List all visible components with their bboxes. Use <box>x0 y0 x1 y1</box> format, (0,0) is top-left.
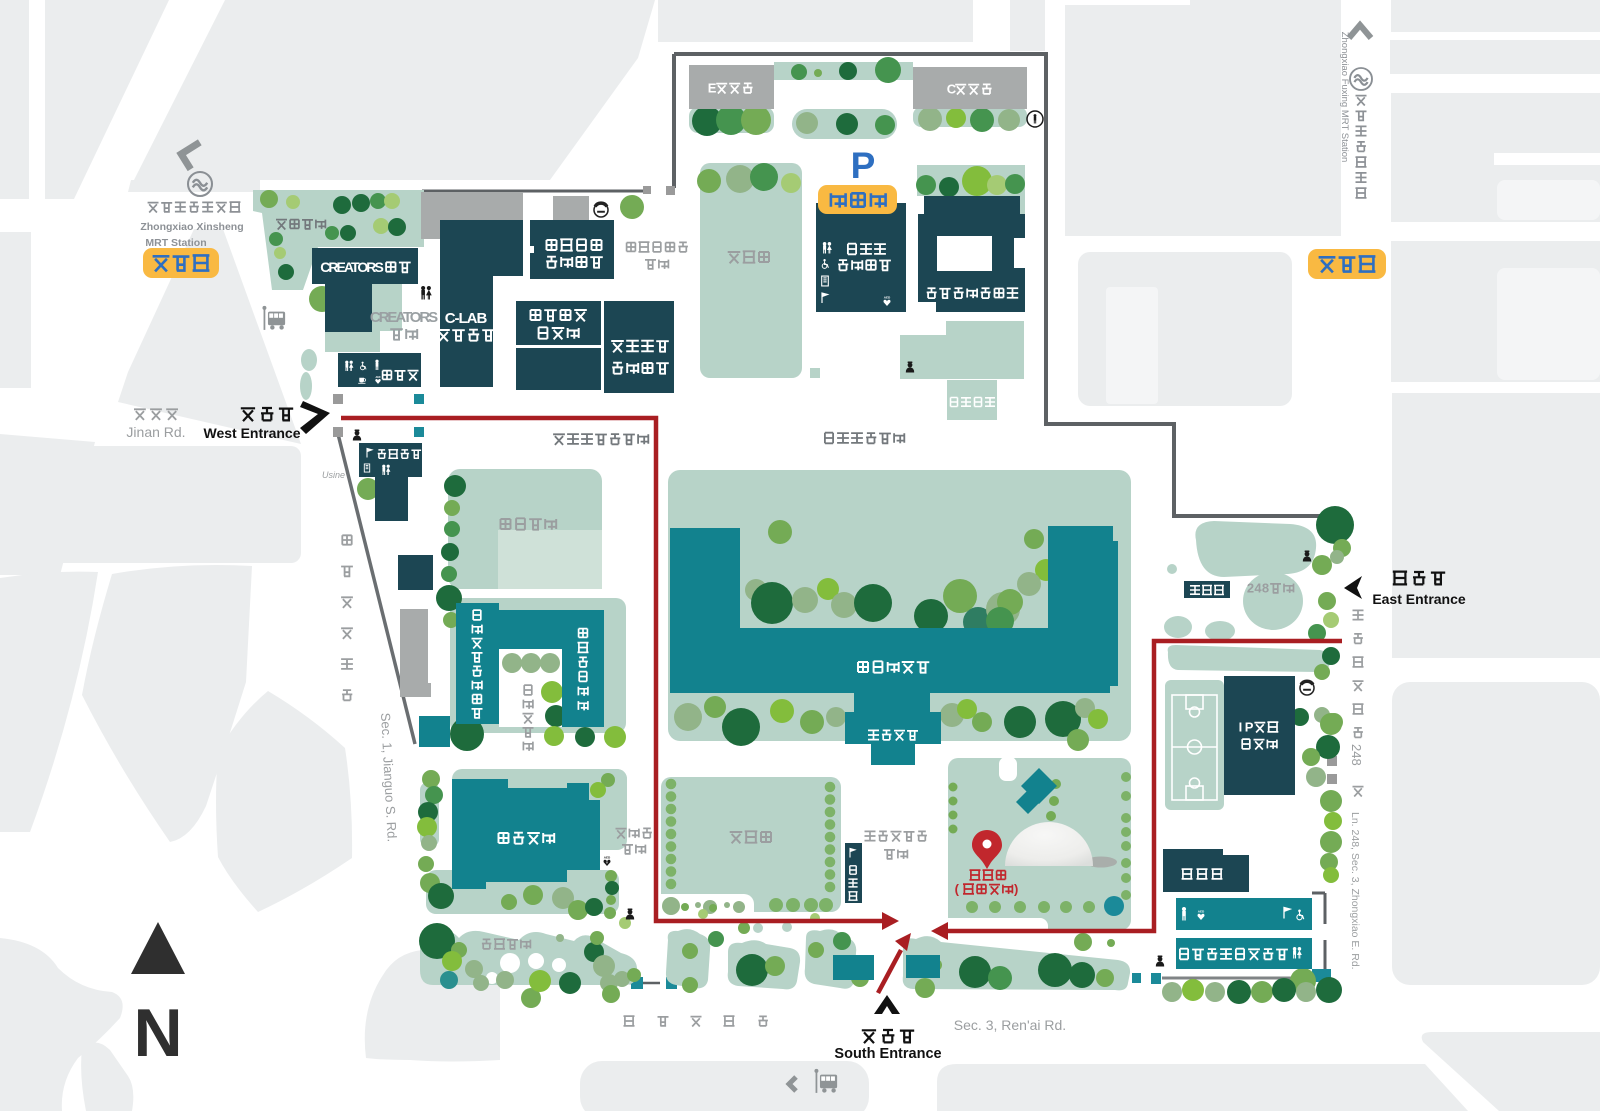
svg-text:248: 248 <box>1247 581 1269 596</box>
svg-text:Zhongxiao Xinsheng: Zhongxiao Xinsheng <box>140 221 243 233</box>
svg-text:Zhongxiao Fuxing MRT Station: Zhongxiao Fuxing MRT Station <box>1339 32 1350 163</box>
svg-text:AED: AED <box>1198 909 1205 913</box>
svg-text:Ln. 248, Sec. 3, Zhongxiao E.: Ln. 248, Sec. 3, Zhongxiao E. Rd. <box>1349 812 1361 970</box>
svg-text:Sec. 3, Ren'ai Rd.: Sec. 3, Ren'ai Rd. <box>954 1017 1066 1033</box>
svg-text:(: ( <box>955 882 960 897</box>
svg-text:South Entrance: South Entrance <box>834 1046 941 1062</box>
svg-text:C: C <box>947 82 957 97</box>
svg-text:P: P <box>851 145 876 186</box>
svg-text:AED: AED <box>604 855 611 859</box>
svg-text:MRT Station: MRT Station <box>145 237 206 249</box>
svg-text:West Entrance: West Entrance <box>204 425 301 441</box>
svg-text:248: 248 <box>1349 744 1364 766</box>
svg-text:AED: AED <box>375 376 380 379</box>
svg-text:CREATORS: CREATORS <box>370 309 438 326</box>
svg-text:East Entrance: East Entrance <box>1372 591 1466 607</box>
svg-text:Jinan Rd.: Jinan Rd. <box>126 424 185 440</box>
svg-text:IP: IP <box>1239 720 1254 735</box>
svg-text:CREATORS: CREATORS <box>320 259 384 275</box>
svg-text:): ) <box>1014 882 1018 897</box>
svg-text:Usine: Usine <box>322 470 345 480</box>
svg-text:AED: AED <box>884 295 891 299</box>
svg-text:N: N <box>133 995 182 1071</box>
svg-text:E: E <box>708 81 717 96</box>
svg-text:C-LAB: C-LAB <box>445 310 488 327</box>
